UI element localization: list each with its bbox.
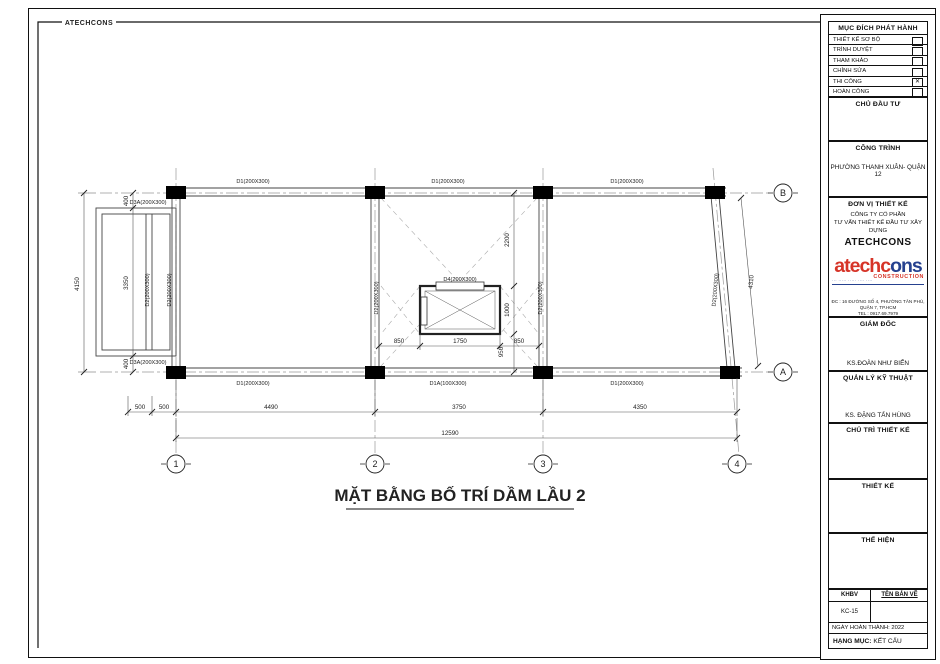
grid-bubble-1: 1 [173, 459, 178, 469]
grid-bubble-2: 2 [372, 459, 377, 469]
beam-label: D2(200X300) [374, 281, 380, 314]
logo-construction-text: CONSTRUCTION [873, 274, 924, 280]
director-name: KS.ĐOÀN NHƯ BIỂN [829, 360, 927, 367]
dim-label: 4150 [74, 277, 81, 291]
beam-layout-plan: ATECHCONS [0, 0, 820, 664]
beam-label: D1(200X300) [610, 179, 643, 185]
khbv-label: KHBV [829, 590, 871, 601]
dim-label: 500 [159, 404, 170, 411]
purpose-row: THAM KHẢO [829, 55, 927, 65]
purpose-label: HOÀN CÔNG [833, 89, 869, 95]
logo-subrow: ··· ····· ····· ···· ···· CONSTRUCTION [832, 276, 924, 285]
company-line1: CÔNG TY CỔ PHẦN [829, 211, 927, 219]
design-firm-box: ĐƠN VỊ THIẾT KẾ CÔNG TY CỔ PHẦN TƯ VẤN T… [828, 197, 928, 317]
issue-purpose-box: MỤC ĐÍCH PHÁT HÀNH THIẾT KẾ SƠ BỘ TRÌNH … [828, 21, 928, 97]
company-line2: TƯ VẤN THIẾT KẾ ĐẦU TƯ XÂY DỰNG [829, 219, 927, 235]
dim-label: 850 [514, 338, 525, 345]
dim-label: 4310 [747, 274, 755, 289]
investor-header: CHỦ ĐẦU TƯ [829, 98, 927, 108]
director-header: GIÁM ĐỐC [829, 318, 927, 328]
purpose-row: HOÀN CÔNG [829, 86, 927, 96]
purpose-label: TRÌNH DUYỆT [833, 47, 873, 53]
beam-label: D2(200X300) [145, 273, 151, 306]
dim-label: 1750 [453, 338, 467, 345]
purpose-label: CHỈNH SỬA [833, 68, 866, 74]
beam-label: D2(200X300) [712, 273, 721, 307]
completion-date-row: NGÀY HOÀN THÀNH: 2022 [829, 623, 927, 634]
beam-label: D3A(200X300) [129, 200, 166, 206]
shaft-door-opening [436, 282, 484, 290]
category-label: HẠNG MỤC: [833, 638, 871, 645]
designer-header: THIẾT KẾ [829, 480, 927, 490]
purpose-row: TRÌNH DUYỆT [829, 44, 927, 54]
dim-label: 400 [123, 195, 130, 206]
dim-label: 850 [394, 338, 405, 345]
investor-box: CHỦ ĐẦU TƯ [828, 97, 928, 141]
draftsman-header: THỂ HIỆN [829, 534, 927, 544]
purpose-row: CHỈNH SỬA [829, 65, 927, 75]
project-name: PHƯỜNG THANH XUÂN- QUẬN 12 [829, 164, 927, 178]
logo-tagline: ··· ····· ····· ···· ···· [832, 279, 873, 283]
elevator-shaft [420, 282, 500, 334]
dim-label: 3750 [452, 404, 466, 411]
purpose-label: THIẾT KẾ SƠ BỘ [833, 37, 880, 43]
title-block: MỤC ĐÍCH PHÁT HÀNH THIẾT KẾ SƠ BỘ TRÌNH … [820, 14, 936, 660]
director-box: GIÁM ĐỐC KS.ĐOÀN NHƯ BIỂN [828, 317, 928, 371]
tech-manager-box: QUẢN LÝ KỸ THUẬT KS. ĐẶNG TẤN HÙNG [828, 371, 928, 423]
beam-label: D3A(200X300) [129, 360, 166, 366]
dim-label: 12590 [441, 430, 459, 437]
dim-label: 2200 [504, 233, 511, 247]
dim-label: 3350 [123, 276, 130, 290]
tech-manager-name: KS. ĐẶNG TẤN HÙNG [829, 412, 927, 419]
purpose-label: THI CÔNG [833, 79, 862, 85]
lead-designer-header: CHỦ TRÌ THIẾT KẾ [829, 424, 927, 434]
company-logo: atechcons [829, 256, 927, 276]
beam-label: D1(200X300) [431, 179, 464, 185]
tech-manager-header: QUẢN LÝ KỸ THUẬT [829, 372, 927, 382]
drawing-code: KC-15 [829, 602, 871, 622]
beam-label: D1(200X300) [236, 381, 269, 387]
beam-label: D1(200X300) [610, 381, 643, 387]
draftsman-box: THỂ HIỆN [828, 533, 928, 589]
project-header: CÔNG TRÌNH [829, 142, 927, 152]
drawing-code-row: KC-15 [829, 602, 927, 623]
drawing-info-box: KHBV TÊN BẢN VẼ KC-15 NGÀY HOÀN THÀNH: 2… [828, 589, 928, 649]
beam-label: D4(200X300) [443, 277, 476, 283]
dim-label: 4490 [264, 404, 278, 411]
drawing-sheet: ATECHCONS [0, 0, 940, 664]
drawing-title: MẶT BẰNG BỐ TRÍ DẦM LẦU 2 [334, 485, 585, 505]
purpose-row: THIẾT KẾ SƠ BỘ [829, 34, 927, 44]
project-box: CÔNG TRÌNH PHƯỜNG THANH XUÂN- QUẬN 12 [828, 141, 928, 197]
grid-bubble-B: B [780, 188, 786, 198]
beam-label: D2(200X300) [538, 281, 544, 314]
beam-labels: D1(200X300) D1(200X300) D1(200X300) D3A(… [129, 179, 643, 387]
issue-purpose-header: MỤC ĐÍCH PHÁT HÀNH [829, 22, 927, 32]
design-firm-header: ĐƠN VỊ THIẾT KẾ [829, 198, 927, 208]
drawing-name-label: TÊN BẢN VẼ [872, 590, 927, 601]
beam-label: D2(200X300) [167, 273, 173, 306]
dim-label: 950 [498, 346, 505, 357]
beams [96, 188, 742, 376]
designer-box: THIẾT KẾ [828, 479, 928, 533]
dim-label: 4350 [633, 404, 647, 411]
company-address: ĐC : 16 ĐƯỜNG SỐ 4, PHƯỜNG TÂN PHÚ, QUẬN… [829, 299, 927, 311]
dim-label: 400 [123, 358, 130, 369]
frame-company-label: ATECHCONS [65, 20, 113, 27]
company-name: ATECHCONS [829, 237, 927, 248]
purpose-label: THAM KHẢO [833, 58, 868, 64]
category-row: HẠNG MỤC: KẾT CẤU [829, 634, 927, 650]
grid-bubble-4: 4 [734, 459, 739, 469]
beam-label: D1(200X300) [236, 179, 269, 185]
purpose-row: THI CÔNG ✕ [829, 76, 927, 86]
dim-label: 500 [135, 404, 146, 411]
grid-bubble-3: 3 [540, 459, 545, 469]
beam-label: D1A(100X300) [429, 381, 466, 387]
grid-bubble-A: A [780, 367, 786, 377]
dim-label: 1000 [504, 303, 511, 317]
category-value: KẾT CẤU [873, 638, 901, 645]
lead-designer-box: CHỦ TRÌ THIẾT KẾ [828, 423, 928, 479]
drawing-info-header-row: KHBV TÊN BẢN VẼ [829, 590, 927, 602]
